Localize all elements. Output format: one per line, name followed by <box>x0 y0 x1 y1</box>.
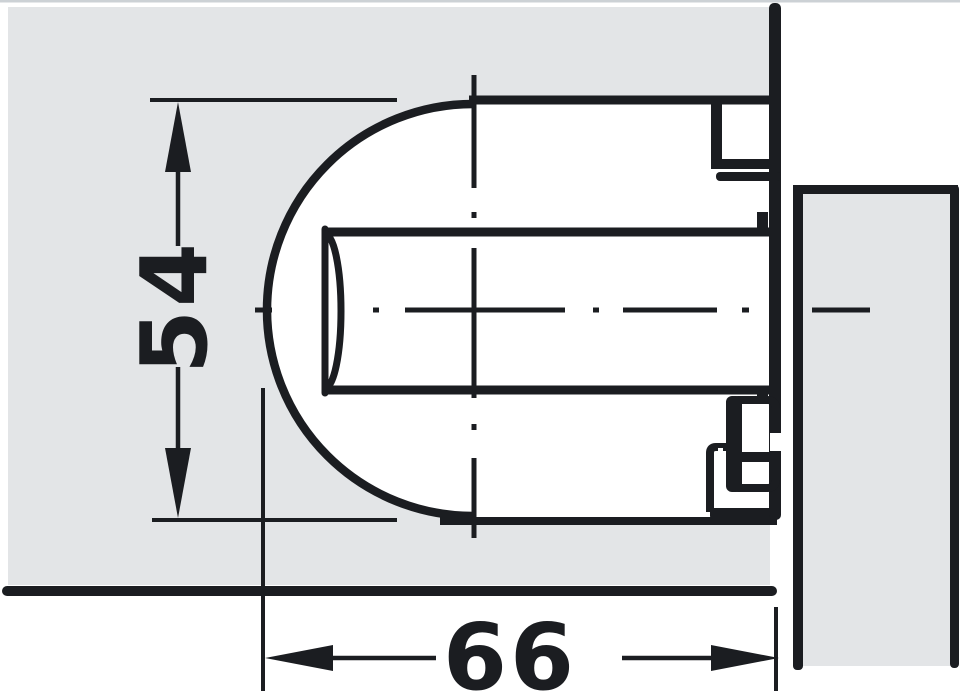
latch-engagement-notch <box>770 433 783 451</box>
hook-bottom-bar <box>711 159 772 169</box>
top-edge-hairline <box>0 0 960 3</box>
latch-foot-gap <box>718 448 723 454</box>
dim-54-label: 54 <box>121 240 228 374</box>
latch-left-rib <box>726 396 742 492</box>
bolt-flange-top <box>757 212 768 234</box>
housing-foot-bar <box>710 508 778 519</box>
left-panel-bottom-edge <box>2 586 777 596</box>
hook-left-bar <box>711 96 722 169</box>
right-panel-right-edge <box>950 185 959 668</box>
right-panel-fill <box>803 193 950 666</box>
latch-middle-bar <box>742 452 781 462</box>
fitting-cross-section-drawing: 54 66 <box>0 0 960 693</box>
right-panel <box>803 193 950 666</box>
dim-66-label: 66 <box>443 604 577 693</box>
technical-drawing-canvas: 54 66 <box>0 0 960 693</box>
hook-lower-bar <box>716 172 781 181</box>
right-panel-left-edge <box>793 185 803 670</box>
right-panel-top-edge <box>793 185 958 194</box>
